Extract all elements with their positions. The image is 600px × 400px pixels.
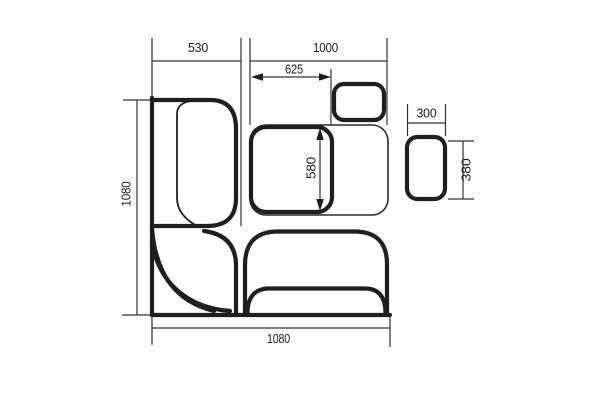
dim-1080-bottom-label: 1080 [267,331,290,346]
arrowhead-625-left [251,73,263,81]
corner-seat-curve-3 [204,231,236,313]
left-bench-outline [152,100,236,226]
left-bench-seat-line [177,101,197,226]
drawing-canvas: 530 1000 625 580 1080 1080 300 380 [0,0,600,400]
corner-seat-curve-2 [152,242,230,311]
stool-separate [407,137,445,199]
table [251,127,332,212]
dim-580-label: 580 [304,157,319,179]
stool-at-table [334,84,384,120]
dim-1080-left-label: 1080 [119,182,134,207]
dim-625-label: 625 [285,62,303,77]
arrowhead-625-right [319,73,331,81]
dim-380-label: 380 [459,159,474,182]
dim-300-label: 300 [417,106,437,121]
bottom-bench-seat-line [248,289,386,314]
bottom-bench-outline [245,232,387,314]
dim-1000-label: 1000 [313,40,338,55]
dim-530-label: 530 [188,40,208,55]
technical-drawing: 530 1000 625 580 1080 1080 300 380 [0,0,600,400]
